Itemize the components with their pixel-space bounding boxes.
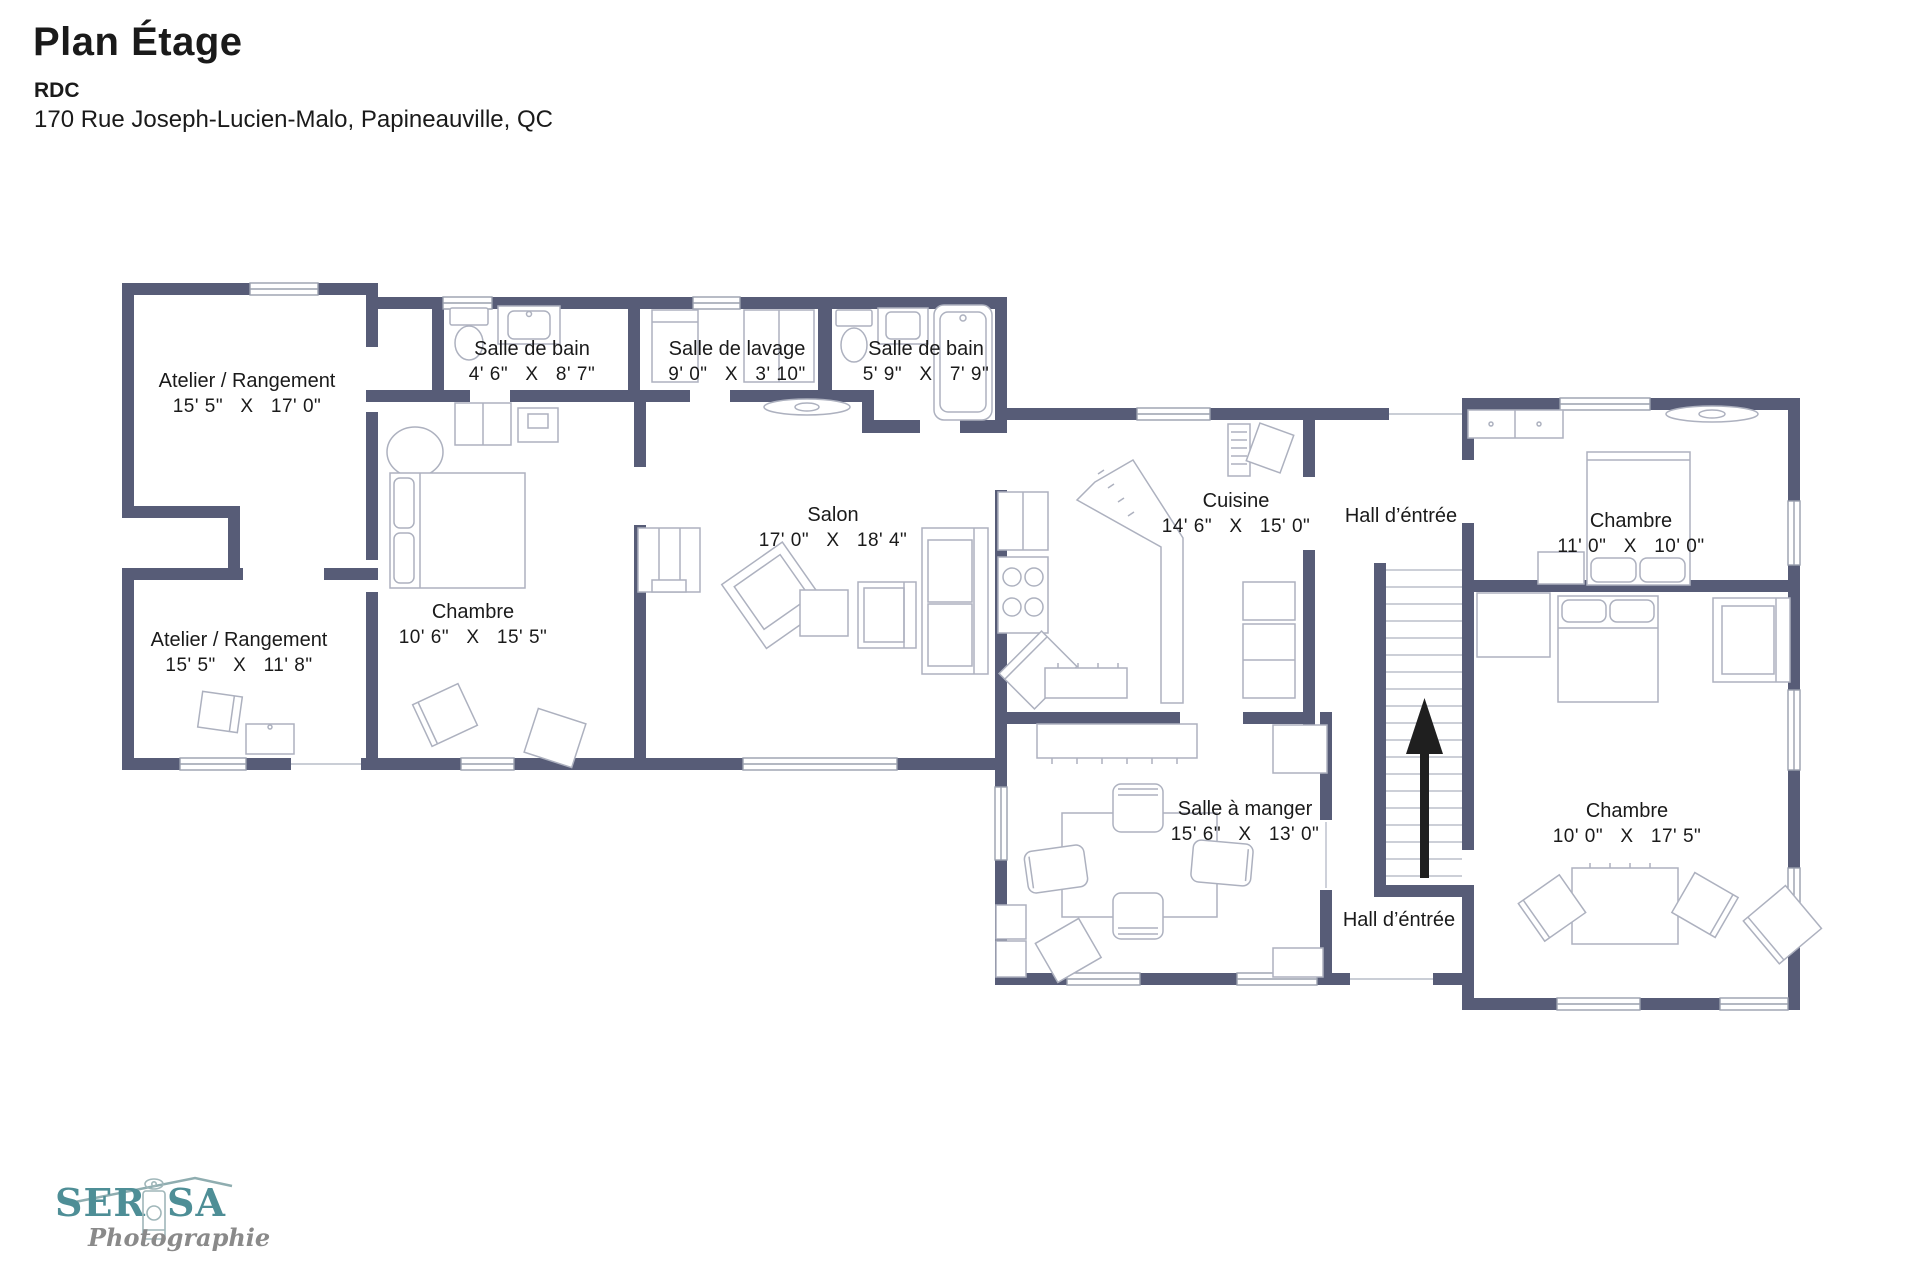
window-icon [180, 758, 246, 770]
wardrobe-icon [455, 403, 511, 445]
window-icon [1560, 398, 1650, 410]
window-icon [693, 297, 740, 309]
bed-icon [1587, 452, 1690, 585]
cabinet-icon [1273, 948, 1323, 977]
cabinet-icon [246, 724, 294, 754]
kitchen-island-icon [1077, 460, 1183, 703]
cabinet-icon [1273, 725, 1327, 773]
window-icon [743, 758, 897, 770]
bathroom-sink-icon [498, 306, 560, 344]
fridge-icon [998, 492, 1048, 550]
closet-icon [1477, 593, 1550, 657]
chair-icon [1743, 886, 1821, 964]
bed-icon [390, 473, 525, 588]
toilet-icon [450, 308, 488, 360]
chair-icon [413, 684, 478, 747]
dryer-icon [744, 310, 814, 382]
logo-tagline: Photographie [87, 1223, 270, 1252]
desk-icon [1572, 863, 1678, 944]
logo-text-prefix: SER [55, 1180, 146, 1225]
window-icon [250, 283, 318, 295]
kitchen-counter-icon [1045, 663, 1127, 698]
armchair-icon [1713, 598, 1790, 682]
window-icon [1720, 998, 1788, 1010]
window-icon [995, 787, 1007, 860]
round-table-icon [387, 427, 443, 477]
window-icon [1788, 501, 1800, 565]
bench-icon [1538, 552, 1584, 584]
stairs-up-arrow [1406, 698, 1443, 878]
ceiling-fan-icon [1666, 406, 1758, 422]
chair-icon [1023, 844, 1088, 894]
bathroom-sink-icon [878, 308, 928, 344]
logo: SER SA Photographie [55, 1178, 270, 1252]
chair-icon [1672, 873, 1738, 938]
chair-icon [1113, 893, 1163, 939]
bathtub-icon [934, 305, 992, 420]
chair-icon [1190, 839, 1253, 886]
stove-icon [998, 557, 1048, 633]
counter-bar-icon [1037, 724, 1197, 764]
window-icon [1788, 690, 1800, 770]
window-icon [443, 297, 492, 309]
kitchen-chair-icon [1228, 424, 1250, 476]
logo-text-suffix: SA [167, 1180, 226, 1225]
armchair-icon [858, 582, 916, 648]
window-icon [461, 758, 514, 770]
desk-icon [518, 408, 558, 442]
tv-console-icon [638, 528, 700, 592]
bed-icon [1558, 596, 1658, 702]
toilet-icon [836, 310, 872, 362]
cabinet-icon [996, 905, 1026, 977]
washer-icon [652, 310, 698, 382]
pantry-icon [1243, 582, 1295, 698]
dresser-icon [1468, 410, 1563, 438]
sofa-icon [922, 528, 988, 674]
floor-plan-svg: SER SA Photographie [0, 0, 1920, 1279]
window-icon [1137, 408, 1210, 420]
easel-icon [198, 691, 243, 732]
ceiling-fan-icon [764, 399, 850, 415]
side-table-icon [1246, 423, 1294, 473]
side-table-icon [800, 590, 848, 636]
window-icon [1557, 998, 1640, 1010]
chair-icon [1113, 784, 1163, 832]
window-icon [1067, 973, 1140, 985]
